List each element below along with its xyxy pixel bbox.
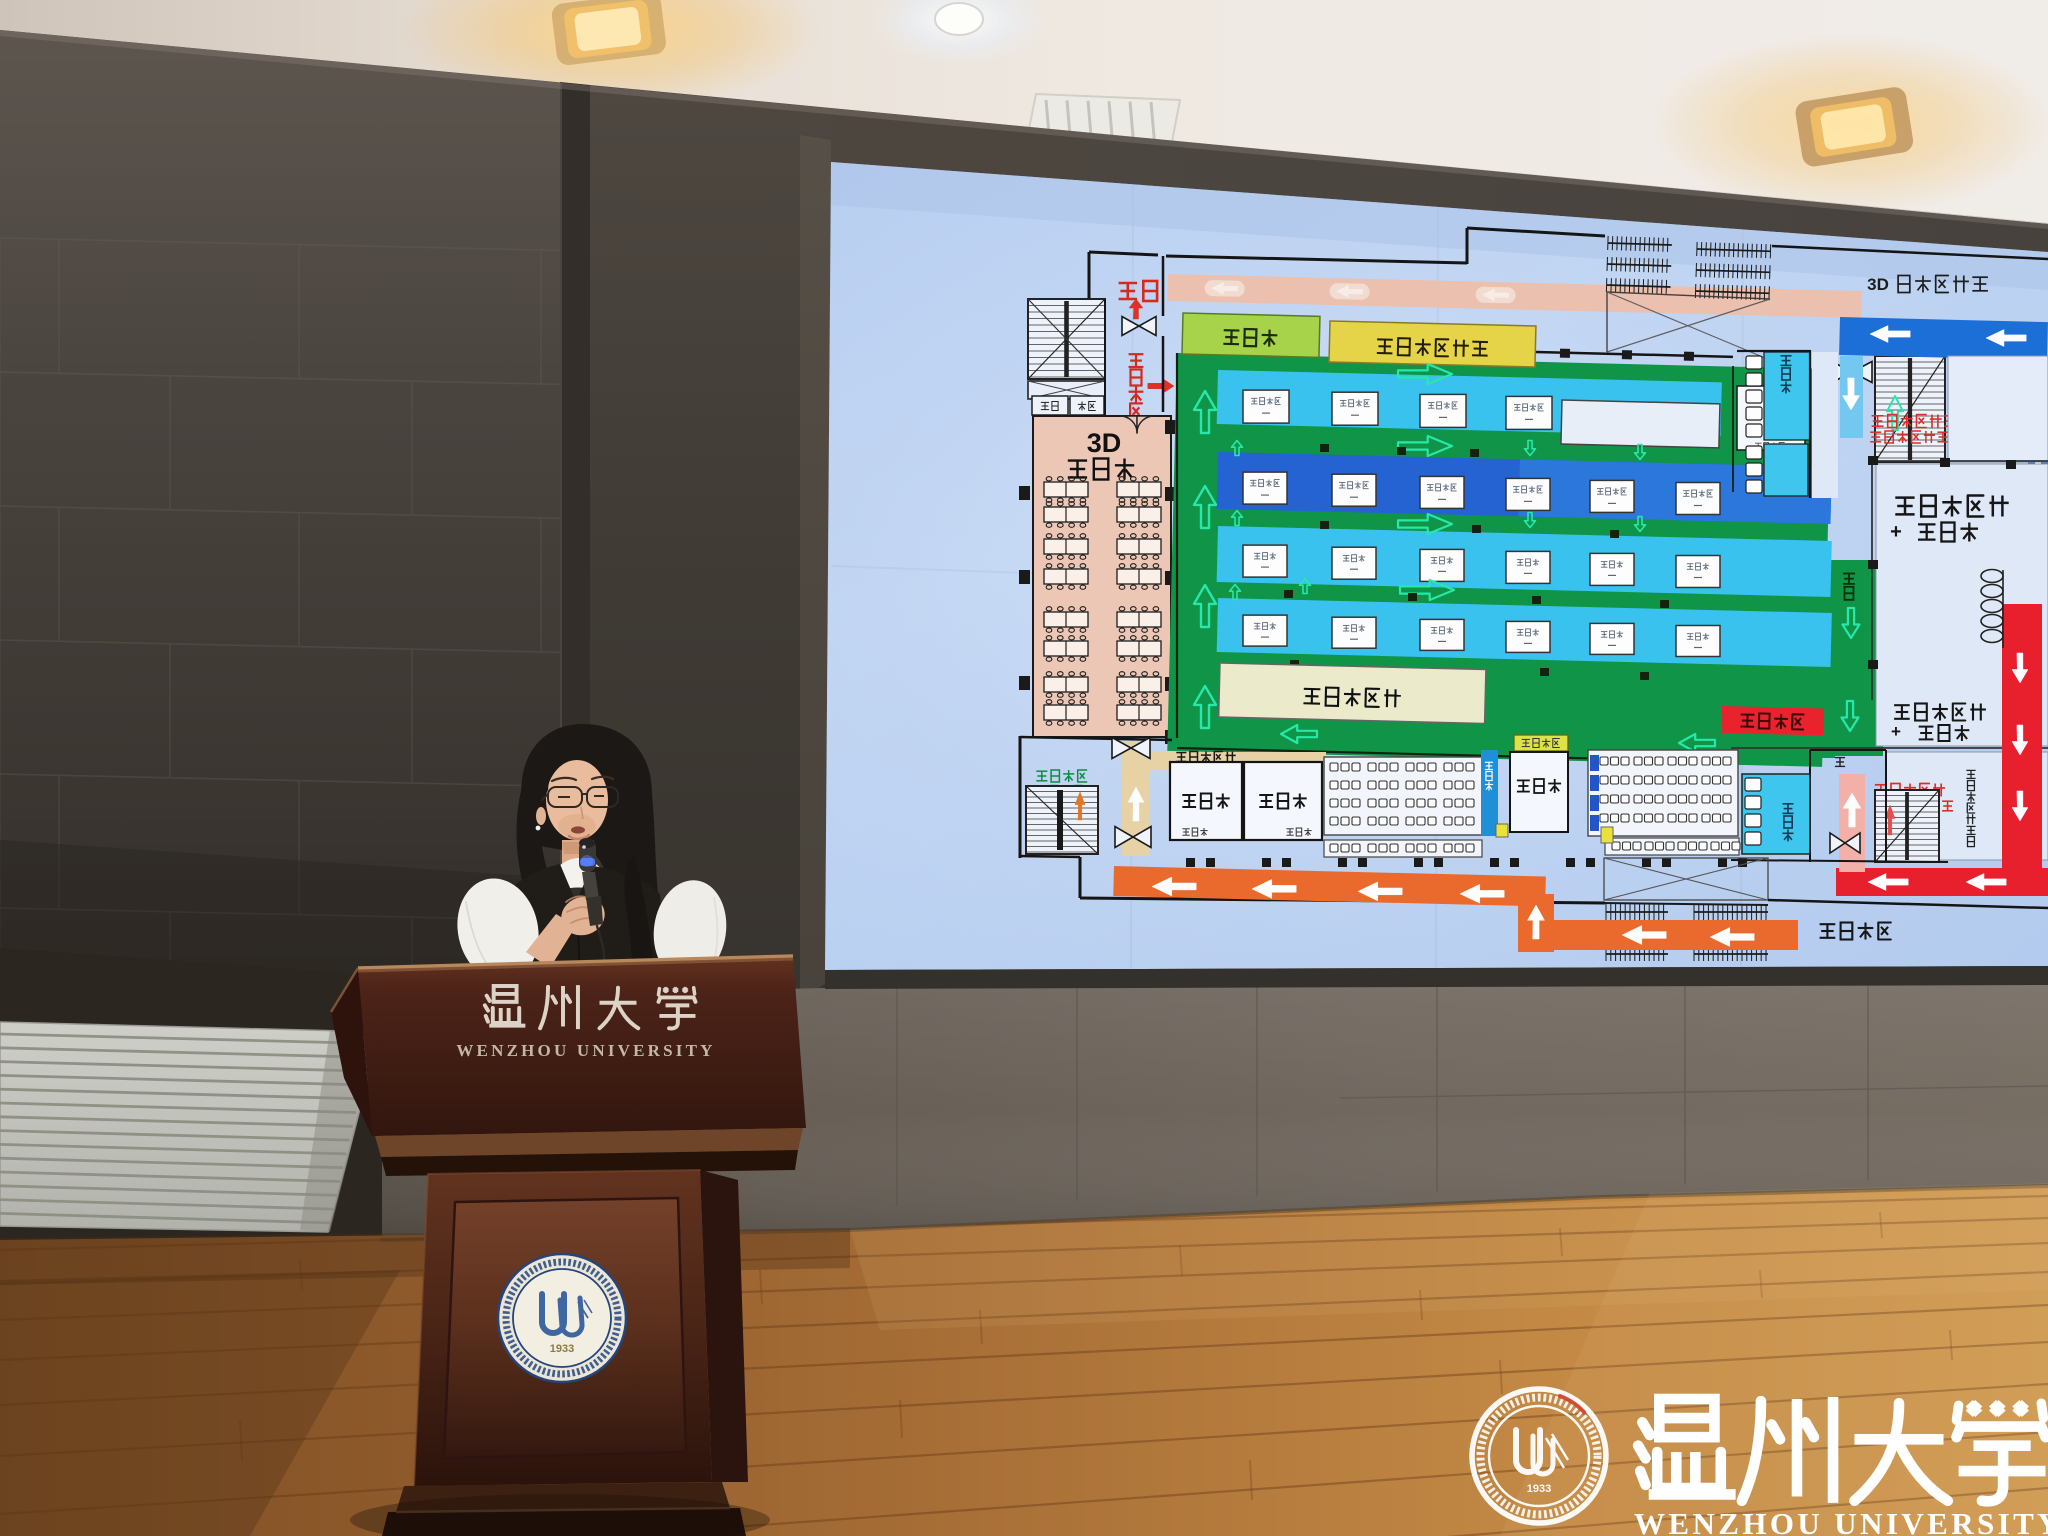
svg-text:1933: 1933 bbox=[550, 1343, 574, 1355]
svg-text:+: + bbox=[1891, 722, 1901, 741]
svg-text:1933: 1933 bbox=[1527, 1483, 1551, 1495]
svg-text:WENZHOU UNIVERSITY: WENZHOU UNIVERSITY bbox=[1634, 1506, 2048, 1536]
svg-text:3D: 3D bbox=[1867, 275, 1889, 294]
svg-text:3D: 3D bbox=[1087, 428, 1122, 458]
svg-text:+: + bbox=[1890, 521, 1902, 543]
svg-text:WENZHOU UNIVERSITY: WENZHOU UNIVERSITY bbox=[456, 1041, 715, 1060]
